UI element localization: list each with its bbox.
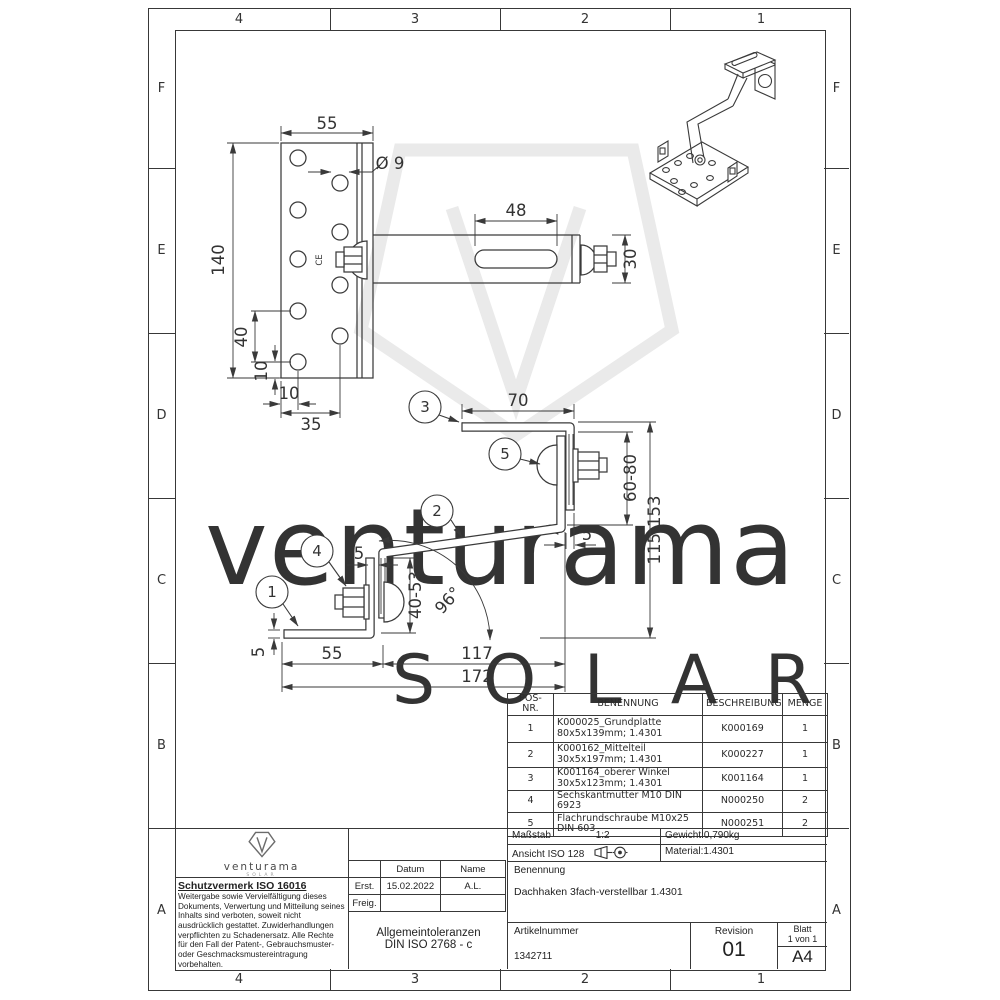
grid-tick [824,663,849,664]
grid-row-label: E [824,238,849,262]
gewicht-value: Gewicht:0,790kg [665,830,740,841]
grid-row-label: A [824,898,849,922]
revision-value: 01 [691,938,777,962]
grid-row-label: D [824,403,849,427]
part-name: Sechskantmutter M10 DIN 6923 [554,790,703,812]
ansicht-label: Ansicht ISO 128 [512,849,584,860]
grid-row-label: E [148,238,175,262]
grid-tick [148,663,175,664]
grid-col-label: 3 [395,968,435,990]
blatt-value: 1 von 1 [778,934,827,944]
parts-list-table: POS-NR. BENENNUNG BESCHREIBUNG MENGE 1 K… [507,693,828,837]
grid-row-label: C [824,568,849,592]
grid-col-label: 3 [395,8,435,30]
schutzvermerk-cell: Schutzvermerk ISO 16016 Weitergabe sowie… [175,877,348,969]
tolerances-line1: Allgemeintoleranzen [349,927,508,939]
part-name: K001164_oberer Winkel 30x5x123mm; 1.4301 [554,767,703,790]
grid-tick [148,498,175,499]
grid-tick [500,969,501,990]
part-qty: 1 [783,715,828,742]
artikelnummer-label: Artikelnummer [514,926,684,937]
ansicht-cell: Ansicht ISO 128 [507,844,660,861]
grid-col-label: 2 [565,8,605,30]
logo-cell: venturama SOLAR [175,828,348,877]
part-desc: K000169 [703,715,783,742]
part-pos: 2 [508,742,554,767]
approval-freig-name [440,895,505,912]
grid-tick [824,168,849,169]
part-desc: K001164 [703,767,783,790]
approval-datum-header: Datum [380,861,440,878]
grid-tick [824,498,849,499]
artikelnummer-cell: Artikelnummer 1342711 [507,922,690,969]
masstab-cell: Maßstab 1:2 [507,828,660,844]
benennung-cell: Benennung Dachhaken 3fach-verstellbar 1.… [507,861,827,922]
approval-erst-name: A.L. [440,878,505,895]
gewicht-cell: Gewicht:0,790kg [660,828,827,844]
part-pos: 4 [508,790,554,812]
masstab-value: 1:2 [596,830,610,841]
grid-tick [330,8,331,30]
grid-tick [824,333,849,334]
approval-freig-datum [380,895,440,912]
blatt-cell: Blatt 1 von 1 A4 [777,922,827,969]
approval-cell: Datum Name Erst. 15.02.2022 A.L. Freig. … [348,828,507,969]
material-value: Material:1.4301 [665,846,734,857]
revision-label: Revision [691,926,777,937]
schutzvermerk-title: Schutzvermerk ISO 16016 [178,880,345,892]
grid-row-label: B [148,733,175,757]
grid-tick [330,969,331,990]
benennung-label: Benennung [514,865,821,876]
approval-name-header: Name [440,861,505,878]
table-row: 1 K000025_Grundplatte 80x5x139mm; 1.4301… [508,715,828,742]
col-header-benennung: BENENNUNG [554,694,703,716]
grid-row-label: F [148,76,175,100]
col-header-beschreibung: BESCHREIBUNG [703,694,783,716]
benennung-value: Dachhaken 3fach-verstellbar 1.4301 [514,886,821,898]
grid-tick [670,8,671,30]
grid-col-label: 2 [565,968,605,990]
table-row: 2 K000162_Mittelteil 30x5x197mm; 1.4301 … [508,742,828,767]
masstab-label: Maßstab [512,830,551,841]
approval-freig-label: Freig. [349,895,381,912]
grid-tick [500,8,501,30]
logo-brand: venturama [175,861,348,873]
part-desc: K000227 [703,742,783,767]
schutzvermerk-body: Weitergabe sowie Vervielfältigung dieses… [178,892,345,969]
format-value: A4 [778,946,827,967]
part-qty: 1 [783,767,828,790]
col-header-menge: MENGE [783,694,828,716]
blatt-label: Blatt [778,924,827,934]
grid-row-label: C [148,568,175,592]
approval-erst-label: Erst. [349,878,381,895]
grid-col-label: 1 [741,8,781,30]
grid-col-label: 1 [741,968,781,990]
engineering-drawing-page: { "border": { "cols": ["4", "3", "2", "1… [0,0,1000,1000]
part-desc: N000250 [703,790,783,812]
grid-col-label: 4 [219,968,259,990]
part-qty: 2 [783,790,828,812]
grid-row-label: D [148,403,175,427]
part-pos: 3 [508,767,554,790]
part-pos: 1 [508,715,554,742]
grid-row-label: A [148,898,175,922]
material-cell: Material:1.4301 [660,844,827,861]
grid-tick [148,168,175,169]
grid-tick [670,969,671,990]
table-row: 4 Sechskantmutter M10 DIN 6923 N000250 2 [508,790,828,812]
revision-cell: Revision 01 [690,922,777,969]
part-qty: 1 [783,742,828,767]
approval-erst-datum: 15.02.2022 [380,878,440,895]
title-block: venturama SOLAR Schutzvermerk ISO 16016 … [175,828,827,969]
grid-row-label: F [824,76,849,100]
artikelnummer-value: 1342711 [514,951,684,962]
grid-tick [148,333,175,334]
venturama-logo-icon [247,831,277,858]
grid-tick [148,828,175,829]
part-name: K000162_Mittelteil 30x5x197mm; 1.4301 [554,742,703,767]
projection-symbol-icon [591,846,637,859]
part-name: K000025_Grundplatte 80x5x139mm; 1.4301 [554,715,703,742]
grid-col-label: 4 [219,8,259,30]
approval-table: Datum Name Erst. 15.02.2022 A.L. Freig. [348,860,506,912]
tolerances-line2: DIN ISO 2768 - c [349,939,508,951]
approval-corner [349,861,381,878]
col-header-pos: POS-NR. [508,694,554,716]
table-row: 3 K001164_oberer Winkel 30x5x123mm; 1.43… [508,767,828,790]
